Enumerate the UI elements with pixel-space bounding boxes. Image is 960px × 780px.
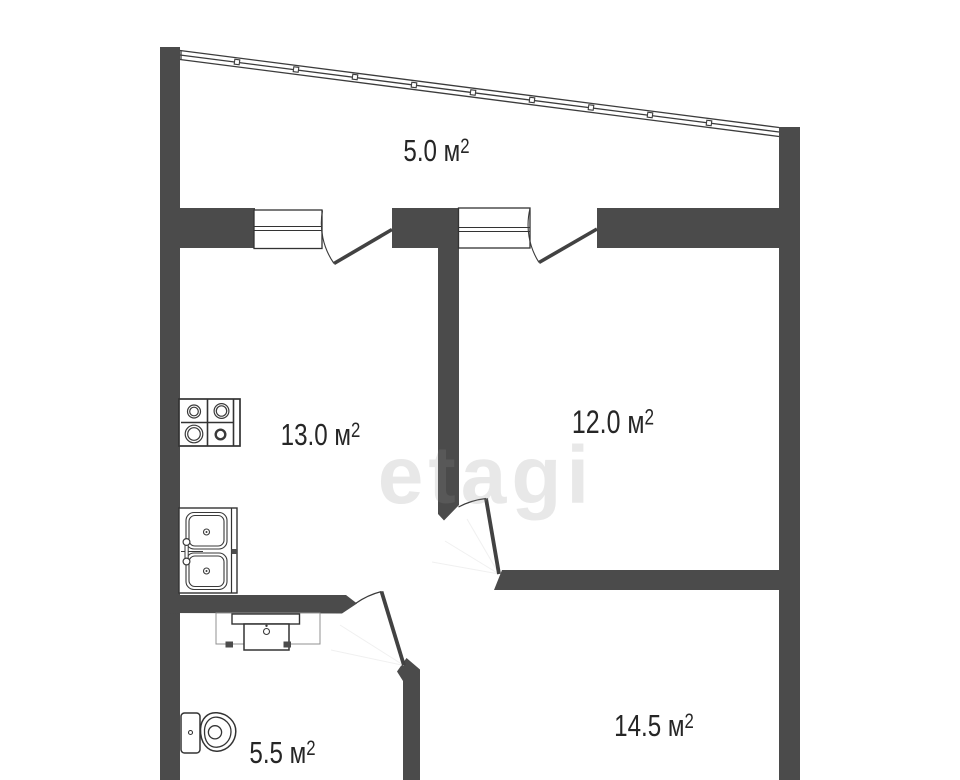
svg-text:13.0 м2: 13.0 м2 [281,417,361,452]
svg-text:5.5 м2: 5.5 м2 [249,735,315,770]
svg-text:12.0 м2: 12.0 м2 [572,405,654,441]
svg-text:5.0 м2: 5.0 м2 [403,133,469,168]
svg-text:etagi: etagi [378,430,594,521]
svg-text:14.5 м2: 14.5 м2 [614,708,694,743]
